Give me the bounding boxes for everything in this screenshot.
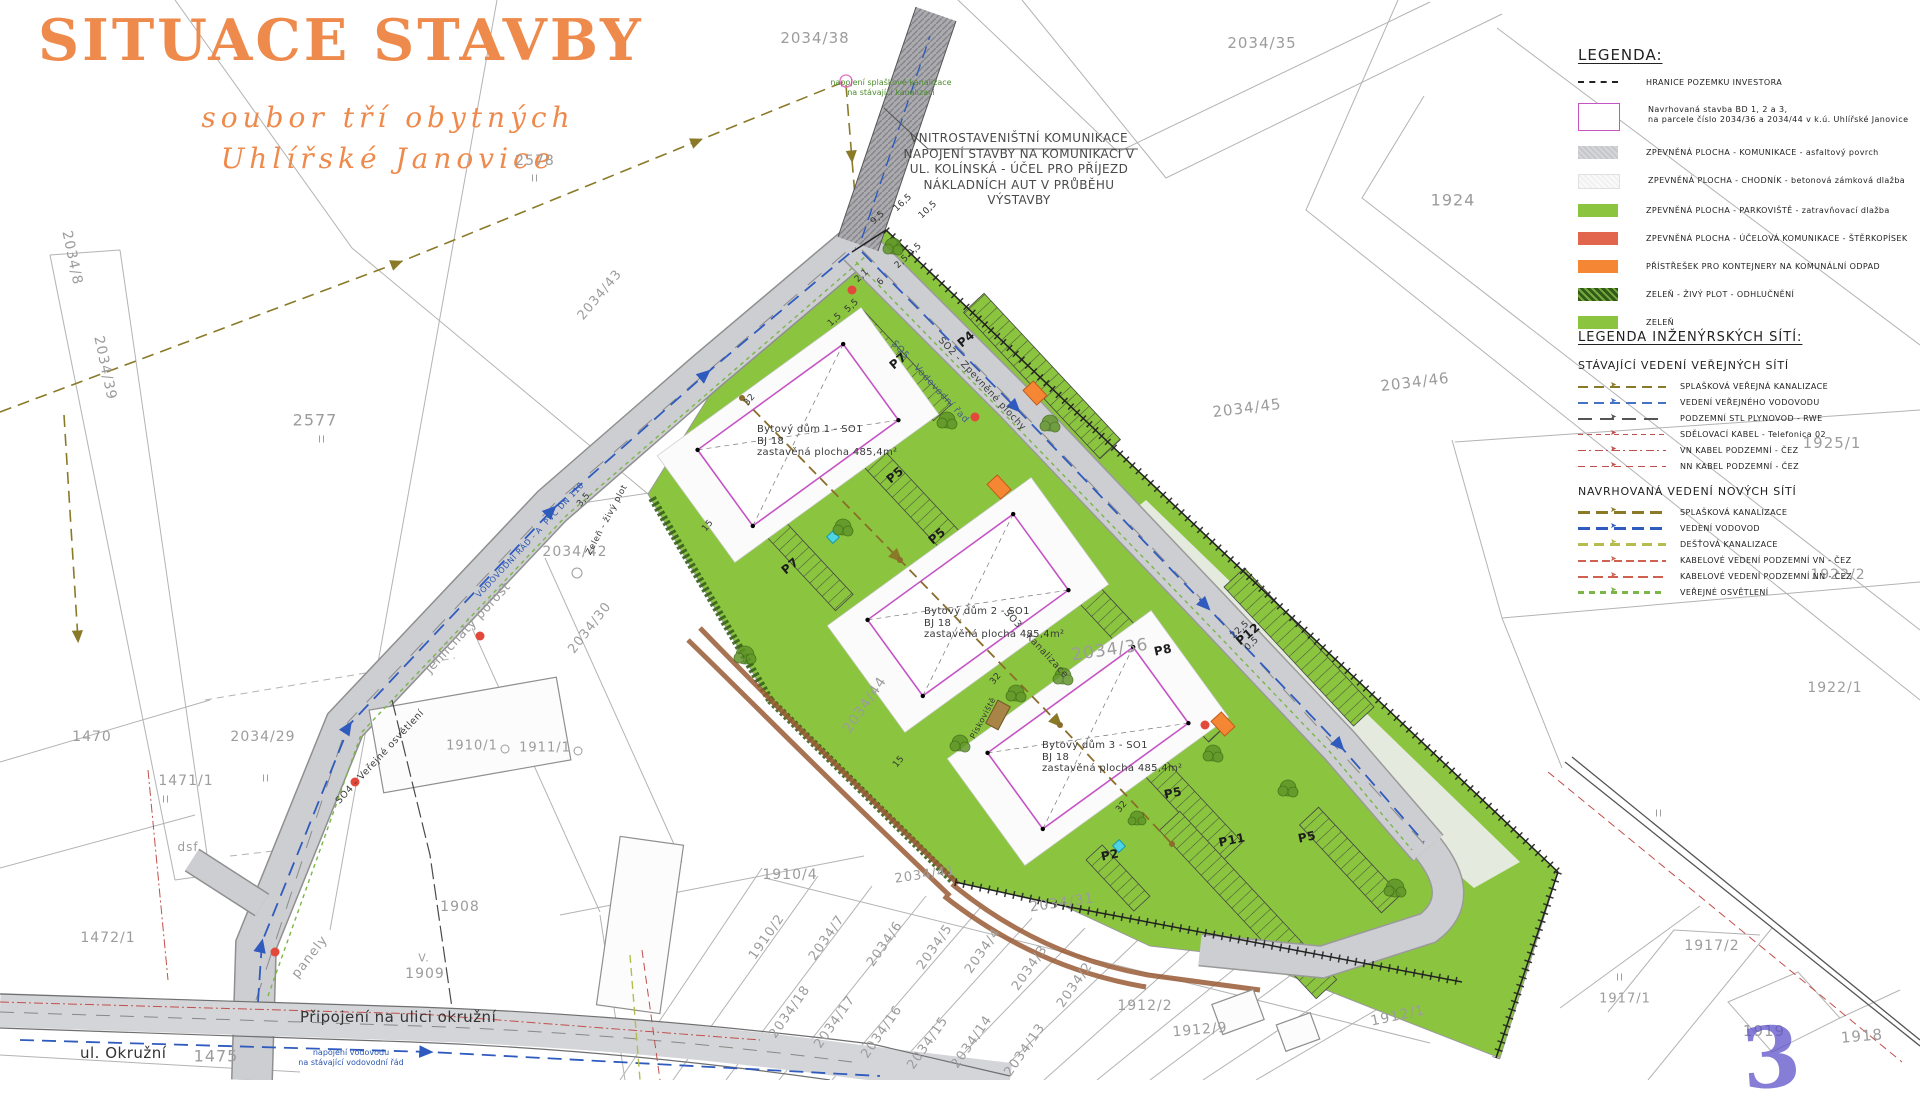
utility-legend-item: ➤VN KABEL PODZEMNÍ - ČEZ [1578, 446, 1898, 455]
water-e-line-sample: ➤ [1578, 402, 1666, 404]
nn-n-line-sample: ➤ [1578, 576, 1666, 578]
parcel-label: II [1616, 973, 1624, 984]
parcel-label: 1472/1 [80, 930, 135, 946]
building-label: Bytový dům 3 - SO1BJ 18zastavěná plocha … [1042, 740, 1182, 775]
legend-item: HRANICE POZEMKU INVESTORA [1578, 76, 1920, 88]
legend-item: ZELEŇ - ŽIVÝ PLOT - ODHLUČNĚNÍ [1578, 288, 1920, 301]
flow-arrow-icon: ➤ [1610, 522, 1617, 530]
utility-item-label: KABELOVÉ VEDENÍ PODZEMNÍ NN - ČEZ [1680, 572, 1852, 581]
hedge-swatch [1578, 288, 1618, 301]
parcel-label: 1922/1 [1807, 680, 1862, 696]
shelter-swatch [1578, 260, 1618, 273]
utility-item-label: SPLAŠKOVÁ VEŘEJNÁ KANALIZACE [1680, 382, 1828, 391]
utility-item-label: DEŠŤOVÁ KANALIZACE [1680, 540, 1778, 549]
legend-heading: LEGENDA: [1578, 46, 1920, 64]
utility-legend-item: ➤VEDENÍ VODOVOD [1578, 524, 1898, 533]
utility-item-label: SPLAŠKOVÁ KANALIZACE [1680, 508, 1787, 517]
utility-legend-item: ➤KABELOVÉ VEDENÍ PODZEMNÍ NN - ČEZ [1578, 572, 1898, 581]
utility-legend-item: ➤VEDENÍ VEŘEJNÉHO VODOVODU [1578, 398, 1898, 407]
utility-item-label: VEDENÍ VEŘEJNÉHO VODOVODU [1680, 398, 1820, 407]
proposed-networks-heading: NAVRHOVANÁ VEDENÍ NOVÝCH SÍTÍ [1578, 485, 1898, 498]
parcel-label: 1912/2 [1117, 998, 1172, 1014]
flow-arrow-icon: ➤ [1610, 429, 1617, 437]
parcel-label: 1924 [1431, 191, 1476, 210]
parcel-label: II [162, 795, 170, 806]
parcel-label: 1471/1 [158, 773, 213, 789]
green-swatch [1578, 316, 1618, 329]
light-line-sample: ➤ [1578, 591, 1666, 594]
parcel-label: dsf. [177, 840, 202, 854]
parcel-label: 1917/1 [1599, 992, 1651, 1007]
utility-legend-heading: LEGENDA INŽENÝRSKÝCH SÍTÍ: [1578, 330, 1898, 345]
parcel-label: 2578 [515, 153, 555, 169]
construction-road [838, 7, 956, 251]
utility-item-label: SDĚLOVACÍ KABEL - Telefonica 02 [1680, 430, 1826, 439]
utility-legend: LEGENDA INŽENÝRSKÝCH SÍTÍ: STÁVAJÍCÍ VED… [1578, 330, 1898, 604]
street-label-okruzni: ul. Okružní [80, 1044, 166, 1062]
parcel-label: 1909 [405, 966, 445, 982]
building-label: Bytový dům 2 - SO1BJ 18zastavěná plocha … [924, 606, 1064, 641]
utility-item-label: NN KABEL PODZEMNÍ - ČEZ [1680, 462, 1799, 471]
legend-item: Navrhovaná stavba BD 1, 2 a 3,na parcele… [1578, 103, 1920, 131]
legend-item-label: ZELEŇ [1646, 316, 1674, 328]
building-swatch [1578, 103, 1620, 131]
nn-line-sample: ➤ [1578, 466, 1666, 468]
rain-line-sample: ➤ [1578, 543, 1666, 546]
legend-item-label: ZPEVNĚNÁ PLOCHA - CHODNÍK - betonová zám… [1648, 174, 1905, 186]
page-title: SITUACE STAVBY [38, 10, 798, 73]
parcel-label: 1910/4 [762, 867, 817, 883]
utility-item-label: KABELOVÉ VEDENÍ PODZEMNÍ VN - ČEZ [1680, 556, 1852, 565]
parcel-label: 2034/38 [780, 29, 849, 47]
legend-item-label: ZPEVNĚNÁ PLOCHA - PARKOVIŠTĚ - zatravňov… [1646, 204, 1890, 216]
sewer-e-line-sample: ➤ [1578, 386, 1666, 388]
legend-item-label: ZPEVNĚNÁ PLOCHA - ÚČELOVÁ KOMUNIKACE - Š… [1646, 232, 1908, 244]
legend-item: ZPEVNĚNÁ PLOCHA - KOMUNIKACE - asfaltový… [1578, 146, 1920, 159]
sewer-n-line-sample: ➤ [1578, 511, 1666, 514]
water-connection-note: napojení vodovoduna stávající vodovodní … [276, 1048, 426, 1067]
stamp-number: 3 [1739, 1006, 1804, 1109]
utility-item-label: PODZEMNÍ STL PLYNOVOD - RWE [1680, 414, 1823, 423]
utility-legend-item: ➤NN KABEL PODZEMNÍ - ČEZ [1578, 462, 1898, 471]
parking-swatch [1578, 204, 1618, 217]
utility-legend-item: ➤SPLAŠKOVÁ VEŘEJNÁ KANALIZACE [1578, 382, 1898, 391]
utility-item-label: VN KABEL PODZEMNÍ - ČEZ [1680, 446, 1798, 455]
flow-arrow-icon: ➤ [1610, 571, 1617, 579]
legend-item-label: ZELEŇ - ŽIVÝ PLOT - ODHLUČNĚNÍ [1646, 288, 1794, 300]
legend-item: ZPEVNĚNÁ PLOCHA - PARKOVIŠTĚ - zatravňov… [1578, 204, 1920, 217]
gravel-swatch [1578, 232, 1618, 245]
parcel-label: V. [418, 952, 430, 965]
dash-swatch [1578, 81, 1618, 83]
utility-item-label: VEŘEJNÉ OSVĚTLENÍ [1680, 588, 1769, 597]
water-n-line-sample: ➤ [1578, 527, 1666, 530]
flow-arrow-icon: ➤ [1610, 506, 1617, 514]
roads [0, 240, 1448, 1080]
proposed-network-items: ➤SPLAŠKOVÁ KANALIZACE➤VEDENÍ VODOVOD➤DEŠ… [1578, 508, 1898, 597]
legend-items: HRANICE POZEMKU INVESTORANavrhovaná stav… [1578, 76, 1920, 329]
flow-arrow-icon: ➤ [1610, 445, 1617, 453]
flow-arrow-icon: ➤ [1610, 555, 1617, 563]
gas-line-sample: ➤ [1578, 418, 1666, 420]
legend-item: ZPEVNĚNÁ PLOCHA - CHODNÍK - betonová zám… [1578, 174, 1920, 189]
parcel-label: 2034/35 [1227, 34, 1296, 52]
legend-item-label: Navrhovaná stavba BD 1, 2 a 3,na parcele… [1648, 103, 1908, 125]
existing-networks-heading: STÁVAJÍCÍ VEDENÍ VEŘEJNÝCH SÍTÍ [1578, 359, 1898, 372]
utility-legend-item: ➤DEŠŤOVÁ KANALIZACE [1578, 540, 1898, 549]
utility-legend-item: ➤KABELOVÉ VEDENÍ PODZEMNÍ VN - ČEZ [1578, 556, 1898, 565]
street-connection-label: Připojení na ulici okružní [300, 1008, 496, 1026]
sidewalk-swatch [1578, 174, 1620, 189]
parcel-label: 2034/29 [230, 729, 295, 745]
parcel-label: II [531, 174, 539, 185]
legend: LEGENDA: HRANICE POZEMKU INVESTORANavrho… [1578, 46, 1920, 344]
existing-network-items: ➤SPLAŠKOVÁ VEŘEJNÁ KANALIZACE➤VEDENÍ VEŘ… [1578, 382, 1898, 471]
telecom-line-sample: ➤ [1578, 434, 1666, 436]
flow-arrow-icon: ➤ [1610, 586, 1617, 594]
utility-legend-item: ➤VEŘEJNÉ OSVĚTLENÍ [1578, 588, 1898, 597]
legend-item-label: PŘÍSTŘEŠEK PRO KONTEJNERY NA KOMUNÁLNÍ O… [1646, 260, 1880, 272]
flow-arrow-icon: ➤ [1610, 538, 1617, 546]
legend-item: PŘÍSTŘEŠEK PRO KONTEJNERY NA KOMUNÁLNÍ O… [1578, 260, 1920, 273]
utility-legend-item: ➤PODZEMNÍ STL PLYNOVOD - RWE [1578, 414, 1898, 423]
utility-legend-item: ➤SDĚLOVACÍ KABEL - Telefonica 02 [1578, 430, 1898, 439]
flow-arrow-icon: ➤ [1610, 461, 1617, 469]
parcel-label: 1475 [194, 1047, 239, 1066]
parcel-label: 1470 [72, 729, 112, 745]
sewer-connection-note: napojení splaškové kanalizacena stávajíc… [826, 78, 956, 97]
legend-item-label: ZPEVNĚNÁ PLOCHA - KOMUNIKACE - asfaltový… [1646, 146, 1879, 158]
parcel-label: 1911/1 [519, 741, 571, 756]
parcel-label: 2577 [293, 411, 338, 430]
utility-item-label: VEDENÍ VODOVOD [1680, 524, 1760, 533]
utility-legend-item: ➤SPLAŠKOVÁ KANALIZACE [1578, 508, 1898, 517]
parcel-label: II [262, 774, 270, 785]
flow-arrow-icon: ➤ [1610, 381, 1617, 389]
parcel-label: II [318, 435, 326, 446]
construction-note: VNITROSTAVENIŠTNÍ KOMUNIKACENAPOJENÍ STA… [898, 131, 1140, 209]
road-swatch [1578, 146, 1618, 159]
parcel-label: 1917/2 [1684, 938, 1739, 954]
subtitle-line-1: soubor tří obytných [38, 101, 738, 134]
vn-line-sample: ➤ [1578, 450, 1666, 452]
parcel-label: 1910/1 [446, 739, 498, 754]
parcel-label: II [1655, 809, 1663, 820]
site-plan-page: SITUACE STAVBY soubor tří obytných Uhlíř… [0, 0, 1920, 1080]
flow-arrow-icon: ➤ [1610, 397, 1617, 405]
subtitle-line-2: Uhlířské Janovice [38, 142, 738, 175]
title-block: SITUACE STAVBY soubor tří obytných Uhlíř… [38, 10, 798, 175]
vn-n-line-sample: ➤ [1578, 560, 1666, 562]
parcel-label: 1918 [1840, 1025, 1884, 1047]
legend-item: ZELEŇ [1578, 316, 1920, 329]
flow-arrow-icon: ➤ [1610, 413, 1617, 421]
legend-item-label: HRANICE POZEMKU INVESTORA [1646, 76, 1782, 88]
building-label: Bytový dům 1 - SO1BJ 18zastavěná plocha … [757, 424, 897, 459]
legend-item: ZPEVNĚNÁ PLOCHA - ÚČELOVÁ KOMUNIKACE - Š… [1578, 232, 1920, 245]
parcel-label: 1908 [440, 899, 480, 915]
